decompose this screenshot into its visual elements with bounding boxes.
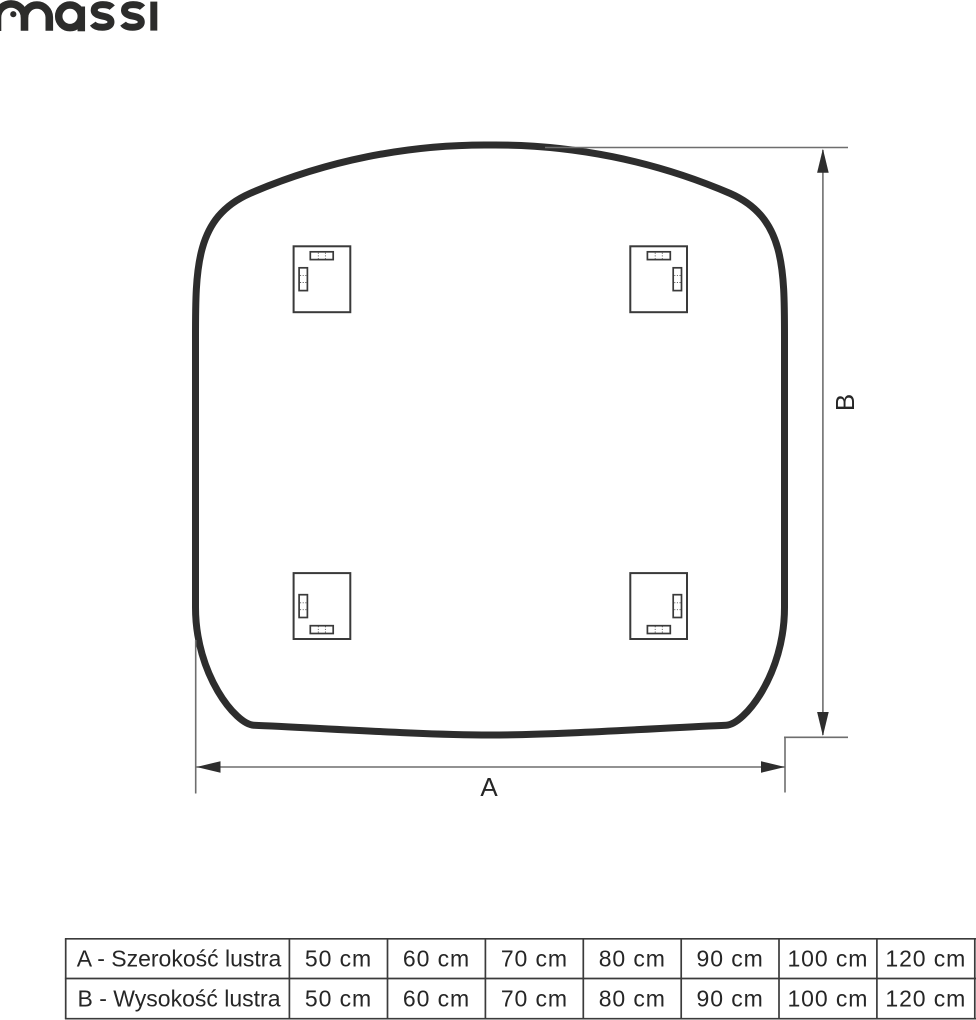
svg-text:100 cm: 100 cm xyxy=(787,946,868,972)
svg-text:B - Wysokość lustra: B - Wysokość lustra xyxy=(77,986,280,1012)
svg-text:90 cm: 90 cm xyxy=(697,986,764,1012)
svg-text:70 cm: 70 cm xyxy=(501,986,568,1012)
svg-text:80 cm: 80 cm xyxy=(599,986,666,1012)
svg-text:50 cm: 50 cm xyxy=(305,986,372,1012)
svg-text:100 cm: 100 cm xyxy=(787,986,868,1012)
svg-text:A - Szerokość lustra: A - Szerokość lustra xyxy=(77,946,282,972)
svg-text:90 cm: 90 cm xyxy=(697,946,764,972)
svg-text:80 cm: 80 cm xyxy=(599,946,666,972)
svg-text:A: A xyxy=(480,772,498,802)
svg-text:B: B xyxy=(830,394,860,411)
svg-text:120 cm: 120 cm xyxy=(885,946,966,972)
svg-text:50 cm: 50 cm xyxy=(305,946,372,972)
svg-text:60 cm: 60 cm xyxy=(403,946,470,972)
svg-text:120 cm: 120 cm xyxy=(885,986,966,1012)
svg-text:60 cm: 60 cm xyxy=(403,986,470,1012)
svg-text:70 cm: 70 cm xyxy=(501,946,568,972)
